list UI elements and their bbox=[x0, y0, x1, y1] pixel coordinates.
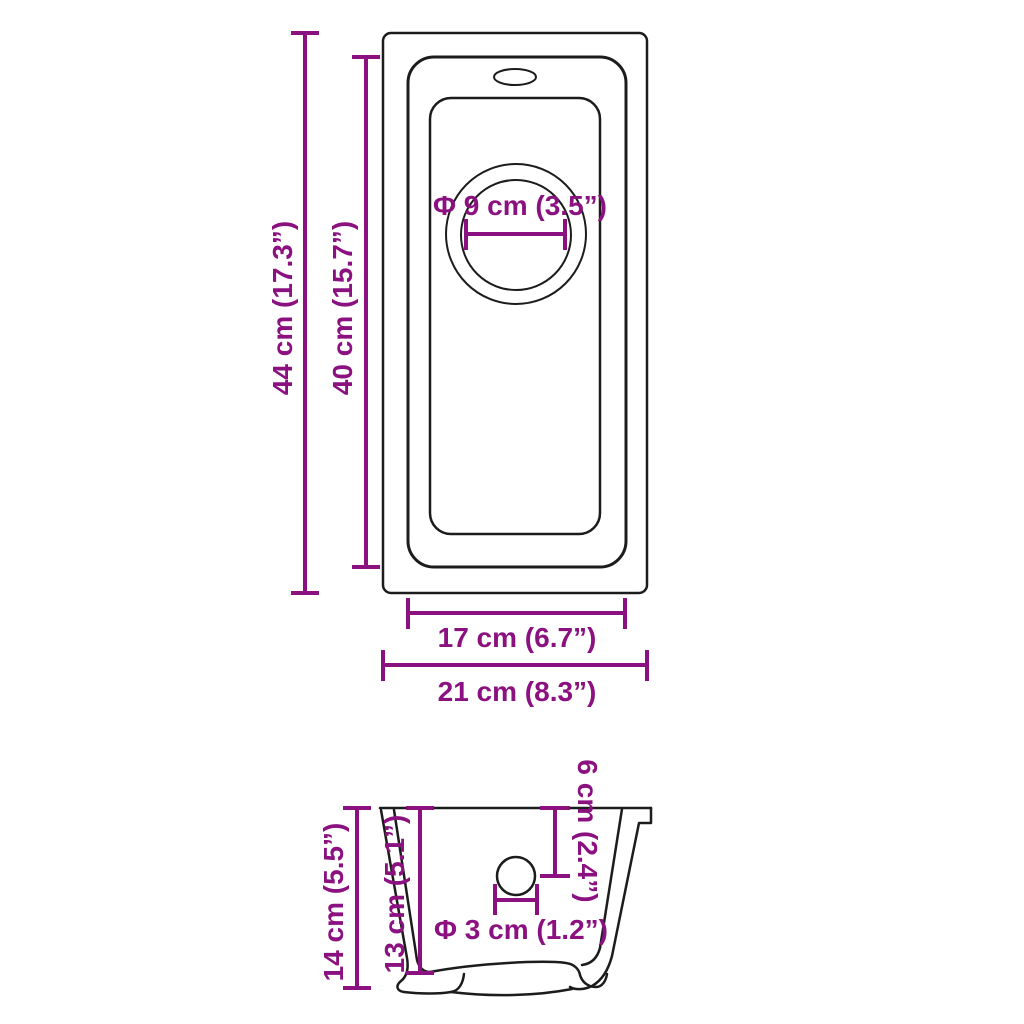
dim-basin-depth: 13 cm (5.1”) bbox=[379, 808, 434, 973]
dim-label-basin-depth: 13 cm (5.1”) bbox=[379, 815, 410, 974]
top-view-rim-rect bbox=[408, 57, 626, 567]
overflow-hole-ellipse bbox=[494, 69, 536, 85]
dim-drain-diameter: Φ 9 cm (3.5”) bbox=[433, 190, 607, 250]
product-dimension-diagram: 44 cm (17.3”) 40 cm (15.7”) Φ 9 cm (3.5”… bbox=[0, 0, 1024, 1024]
dimension-diagram-svg: 44 cm (17.3”) 40 cm (15.7”) Φ 9 cm (3.5”… bbox=[0, 0, 1024, 1024]
top-view-outer-rect bbox=[383, 33, 647, 593]
dim-label-outer-height: 44 cm (17.3”) bbox=[267, 221, 298, 395]
side-view: 14 cm (5.5”) 13 cm (5.1”) 6 cm (2.4”) bbox=[318, 759, 651, 995]
dim-outer-width: 21 cm (8.3”) bbox=[383, 650, 647, 707]
top-view: 44 cm (17.3”) 40 cm (15.7”) Φ 9 cm (3.5”… bbox=[267, 33, 647, 707]
dim-label-drain-offset: 6 cm (2.4”) bbox=[572, 759, 603, 902]
dim-label-drain-diameter: Φ 9 cm (3.5”) bbox=[433, 190, 607, 221]
dim-basin-width: 17 cm (6.7”) bbox=[408, 598, 625, 653]
dim-outer-height: 44 cm (17.3”) bbox=[267, 33, 319, 593]
side-bottom-edge bbox=[451, 989, 572, 995]
dim-drain-offset: 6 cm (2.4”) bbox=[540, 759, 603, 902]
dim-label-drain-hole-diameter: Φ 3 cm (1.2”) bbox=[434, 914, 608, 945]
side-floor bbox=[430, 962, 607, 987]
dim-basin-height: 40 cm (15.7”) bbox=[327, 57, 380, 567]
dim-label-basin-height: 40 cm (15.7”) bbox=[327, 221, 358, 395]
dim-label-outer-depth: 14 cm (5.5”) bbox=[318, 823, 349, 982]
dim-label-basin-width: 17 cm (6.7”) bbox=[438, 622, 597, 653]
dim-label-outer-width: 21 cm (8.3”) bbox=[438, 676, 597, 707]
dim-outer-depth: 14 cm (5.5”) bbox=[318, 808, 371, 988]
side-drain-hole bbox=[497, 857, 535, 895]
